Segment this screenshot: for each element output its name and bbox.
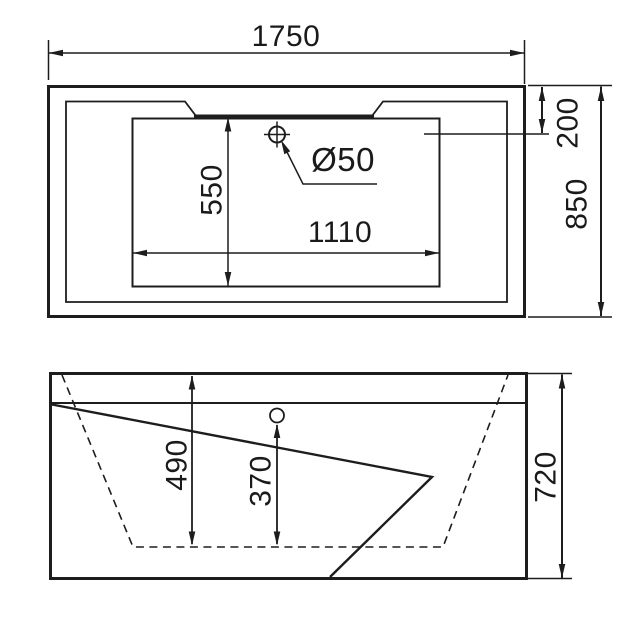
arrowhead-down-icon bbox=[189, 532, 196, 546]
arrowhead-down-icon bbox=[598, 302, 605, 316]
arrowhead-down-icon bbox=[539, 119, 546, 133]
arrowhead-down-icon bbox=[225, 272, 232, 286]
dim-basin-length: 1110 bbox=[133, 216, 439, 256]
arrowhead-right-icon bbox=[425, 250, 439, 257]
side-view: 490 370 720 bbox=[51, 374, 573, 579]
drain-symbol bbox=[264, 122, 290, 148]
dim-label-1110: 1110 bbox=[308, 216, 372, 249]
dim-label-490: 490 bbox=[161, 439, 194, 491]
arrowhead-up-icon bbox=[539, 87, 546, 101]
dim-overall-length: 1750 bbox=[49, 20, 525, 84]
arrowhead-right-icon bbox=[510, 50, 525, 57]
dim-rim-offset: 200 bbox=[424, 87, 585, 149]
basin-rect bbox=[133, 119, 440, 287]
dim-label-550: 550 bbox=[196, 164, 229, 216]
dim-label-1750: 1750 bbox=[252, 20, 321, 53]
arrowhead-up-icon bbox=[274, 424, 281, 438]
arrowhead-left-icon bbox=[49, 50, 64, 57]
hidden-basin-contour bbox=[62, 375, 508, 547]
arrowhead-up-icon bbox=[225, 118, 232, 132]
dim-label-720: 720 bbox=[530, 451, 563, 503]
dim-label-drain: Ø50 bbox=[311, 141, 375, 178]
technical-drawing-canvas: 1750 200 850 550 bbox=[0, 0, 644, 623]
arrowhead-down-icon bbox=[559, 564, 566, 578]
dim-label-370: 370 bbox=[245, 455, 278, 507]
arrowhead-left-icon bbox=[133, 250, 147, 257]
arrowhead-up-icon bbox=[598, 87, 605, 101]
tub-outer-rect bbox=[49, 87, 525, 317]
dim-basin-width: 550 bbox=[196, 118, 232, 287]
arrowhead-down-icon bbox=[274, 532, 281, 546]
dim-label-200: 200 bbox=[552, 97, 585, 149]
arrowhead-leader-icon bbox=[281, 140, 290, 154]
dim-inner-depth: 490 bbox=[161, 376, 196, 546]
arrowhead-up-icon bbox=[189, 376, 196, 390]
dim-overall-height: 720 bbox=[528, 374, 572, 579]
arrowhead-up-icon bbox=[559, 375, 566, 389]
drain-side-circle-icon bbox=[270, 409, 284, 423]
drain-callout: Ø50 bbox=[281, 140, 377, 184]
dim-label-850: 850 bbox=[561, 178, 594, 230]
top-view: 1750 200 850 550 bbox=[49, 20, 613, 317]
